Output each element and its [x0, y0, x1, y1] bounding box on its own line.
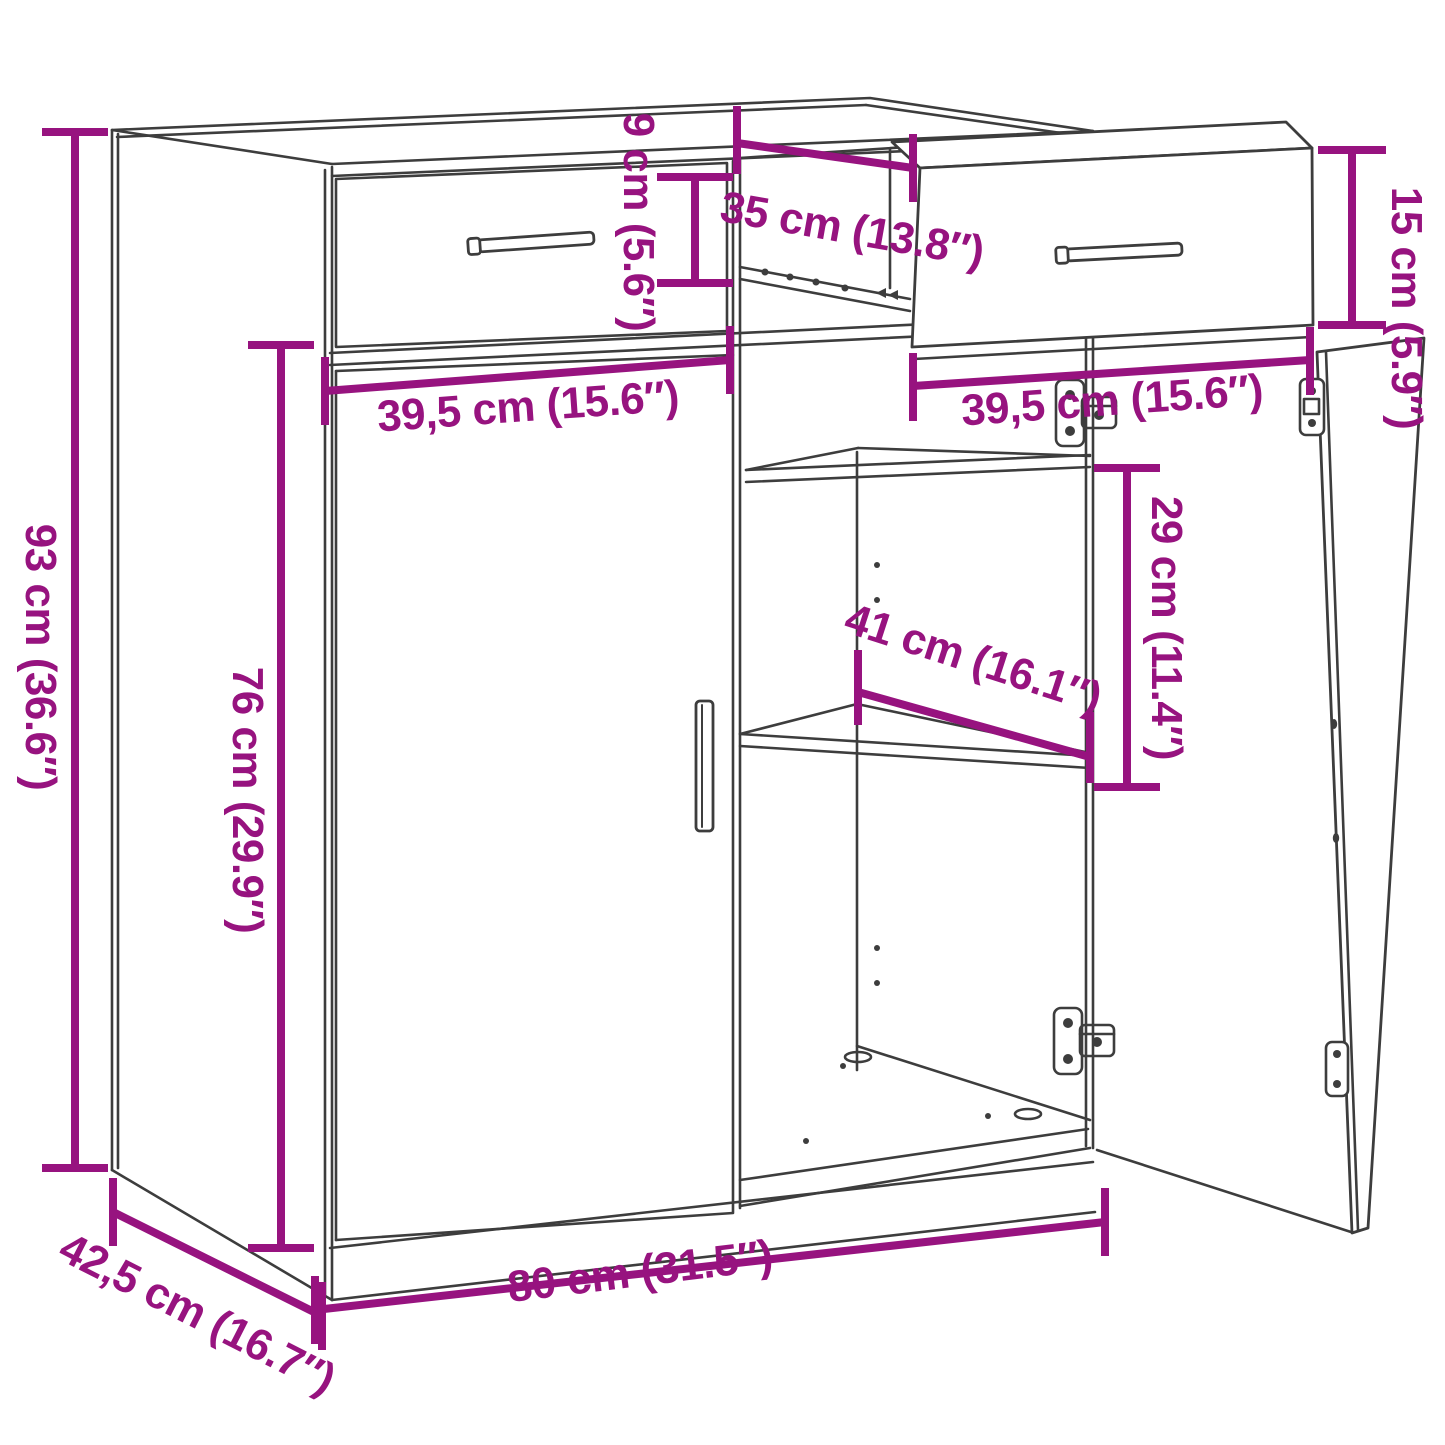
- drawer-slide-arrow-icon: [876, 288, 886, 298]
- shelf-pin-holes: [762, 269, 992, 1145]
- drawer-slide-arrow-icon: [888, 290, 898, 300]
- dimension-label-door-section-height: 76 cm (29.9″): [225, 667, 269, 934]
- left-door-handle[interactable]: [696, 701, 713, 831]
- dimension-label-drawer-inner-height: 9 cm (5.6″): [616, 113, 660, 332]
- open-right-door[interactable]: [1300, 338, 1424, 1233]
- dimension-label-overall-height: 93 cm (36.6″): [18, 524, 62, 791]
- left-drawer-handle[interactable]: [468, 230, 595, 255]
- dimension-label-shelf-gap-height: 29 cm (11.4″): [1144, 496, 1188, 760]
- dimension-diagram: 93 cm (36.6″) 76 cm (29.9″) 9 cm (5.6″) …: [0, 0, 1445, 1445]
- hinge-icon-bottom: [1054, 1008, 1114, 1074]
- floor-line: [1097, 1150, 1351, 1232]
- dimension-label-drawer-front-height: 15 cm (5.9″): [1384, 187, 1428, 430]
